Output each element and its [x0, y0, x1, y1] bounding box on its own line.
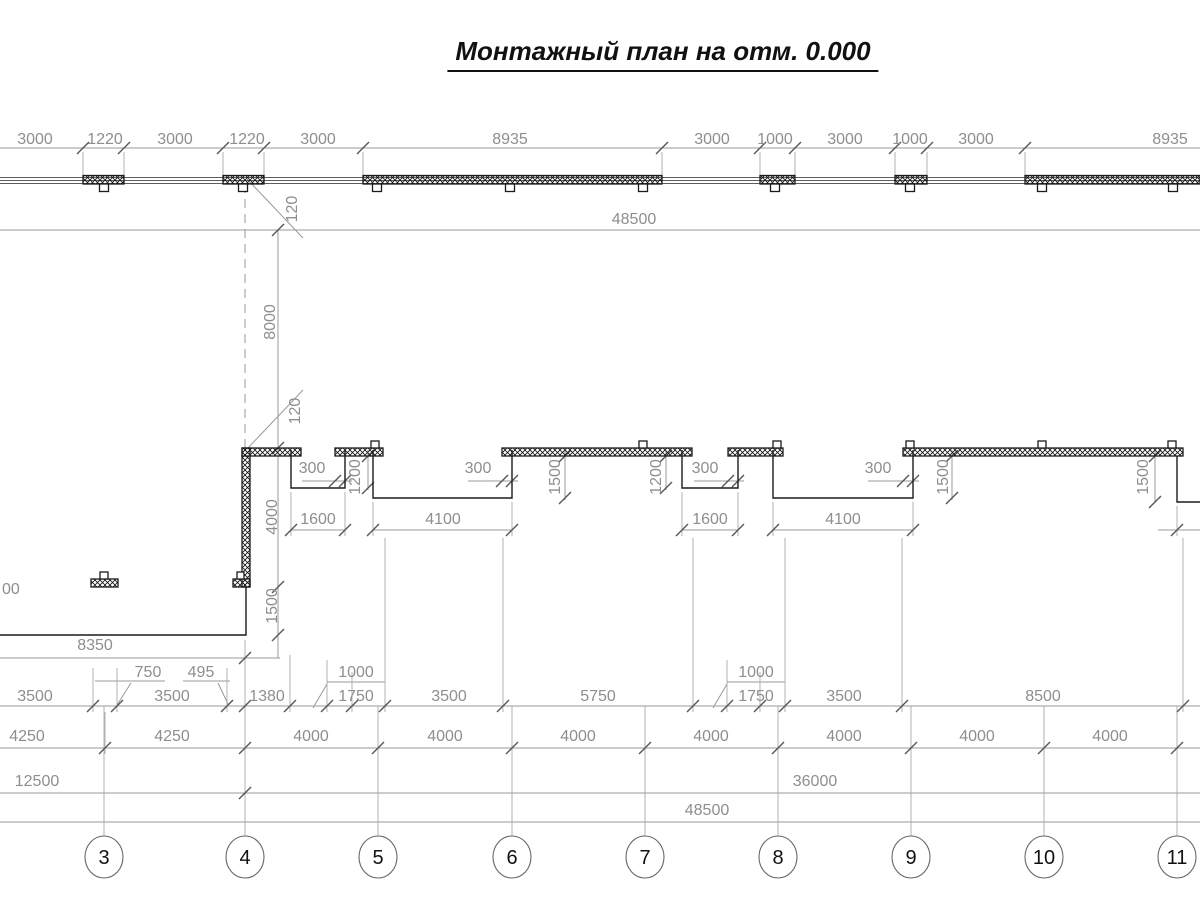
axis-number: 6 [506, 847, 517, 869]
wall-panel [242, 448, 301, 456]
dim-label: 4000 [264, 499, 281, 535]
dim-label: 1200 [648, 459, 665, 495]
dim-label: 1380 [249, 688, 285, 705]
dim-label: 4250 [9, 728, 45, 745]
dim-label: 4250 [154, 728, 190, 745]
dim-label: 300 [465, 460, 492, 477]
dim-label: 750 [135, 664, 162, 681]
axis-number: 11 [1167, 847, 1188, 869]
wall-panel [335, 448, 383, 456]
dim-label: 3000 [157, 131, 193, 148]
dim-label: 3000 [827, 131, 863, 148]
dim-label: 300 [865, 460, 892, 477]
wall-panel [502, 448, 692, 456]
dim-label: 3000 [694, 131, 730, 148]
dim-label: 4000 [826, 728, 862, 745]
dim-label: 1500 [547, 459, 564, 495]
dim-label: 3500 [154, 688, 190, 705]
axis-number: 3 [98, 847, 109, 869]
dim-label: 1000 [738, 664, 774, 681]
dim-label: 300 [299, 460, 326, 477]
wall-foot [233, 579, 250, 587]
wall-panel [903, 448, 1183, 456]
dim-label: 3500 [431, 688, 467, 705]
wall-panel [760, 176, 795, 185]
drawing-title: Монтажный план на отм. 0.000 [447, 36, 878, 72]
dim-label: 4000 [427, 728, 463, 745]
dim-label: 8000 [262, 304, 279, 340]
axis-number: 8 [772, 847, 783, 869]
left-wall-outline [0, 587, 246, 635]
dim-label: 1750 [338, 688, 374, 705]
wall-panel-vertical [242, 448, 250, 587]
axis-number: 4 [239, 847, 250, 869]
dim-label-clipped: 00 [2, 581, 20, 598]
dim-label: 1500 [935, 459, 952, 495]
dim-label: 120 [284, 196, 301, 223]
dim-label: 3000 [300, 131, 336, 148]
dim-label: 4000 [293, 728, 329, 745]
dim-label: 3500 [17, 688, 53, 705]
middle-wall [0, 441, 1200, 635]
drawing-sheet: 3000 1220 3000 1220 3000 8935 3000 1000 … [0, 0, 1200, 900]
wall-panel [728, 448, 783, 456]
dim-label: 3000 [958, 131, 994, 148]
dim-label: 4000 [693, 728, 729, 745]
dim-label: 4000 [560, 728, 596, 745]
dim-label: 1200 [347, 459, 364, 495]
dim-label: 5750 [580, 688, 616, 705]
top-wall [0, 176, 1200, 192]
dim-label: 1000 [892, 131, 928, 148]
dim-total-top: 48500 [612, 211, 657, 228]
wall-panel [1025, 176, 1200, 185]
panel-anchor-marks [371, 441, 1176, 448]
stray-panel [91, 579, 118, 587]
axis-number: 10 [1033, 847, 1055, 869]
dim-label: 1220 [229, 131, 265, 148]
wall-panel [83, 176, 124, 185]
axis-number: 7 [639, 847, 650, 869]
wall-panel [223, 176, 264, 185]
dim-label: 495 [188, 664, 215, 681]
dim-label: 3500 [826, 688, 862, 705]
middle-band-dims: 120 8000 120 4000 1500 1200 1500 1200 15… [2, 196, 1152, 654]
drawing-canvas: 3000 1220 3000 1220 3000 8935 3000 1000 … [0, 0, 1200, 900]
dim-label: 1600 [300, 511, 336, 528]
niche-outline [773, 450, 913, 498]
dim-label: 1750 [738, 688, 774, 705]
dim-label: 1000 [757, 131, 793, 148]
axis-number: 9 [905, 847, 916, 869]
dim-label: 3000 [17, 131, 53, 148]
dim-label: 48500 [685, 802, 730, 819]
wall-foot-mark [237, 572, 244, 579]
dim-label: 120 [287, 398, 304, 425]
dim-label: 1600 [692, 511, 728, 528]
wall-panel [363, 176, 662, 185]
dim-label: 4100 [425, 511, 461, 528]
grid-axis-bubbles: 3 4 5 6 7 8 9 10 11 [85, 836, 1196, 878]
dim-label: 8935 [1152, 131, 1188, 148]
dim-label: 1220 [87, 131, 123, 148]
stray-panel-mark [100, 572, 108, 579]
dim-label: 8500 [1025, 688, 1061, 705]
dim-label: 4100 [825, 511, 861, 528]
dim-label: 300 [692, 460, 719, 477]
axis-number: 5 [372, 847, 383, 869]
dim-label: 8935 [492, 131, 528, 148]
dim-label: 36000 [793, 773, 838, 790]
dimension-lines [0, 148, 1200, 822]
dim-label: 12500 [15, 773, 60, 790]
dim-label: 1500 [264, 588, 281, 624]
dim-label: 1000 [338, 664, 374, 681]
dim-label: 1500 [1135, 459, 1152, 495]
wall-end-outline [1177, 456, 1200, 502]
bottom-dimension-rows: 750 495 1000 1750 1000 1750 3500 3500 13… [9, 664, 1128, 819]
dim-label: 8350 [77, 637, 113, 654]
dim-label: 4000 [959, 728, 995, 745]
wall-panel [895, 176, 927, 185]
panel-anchor-marks [100, 184, 1178, 192]
dim-label: 4000 [1092, 728, 1128, 745]
